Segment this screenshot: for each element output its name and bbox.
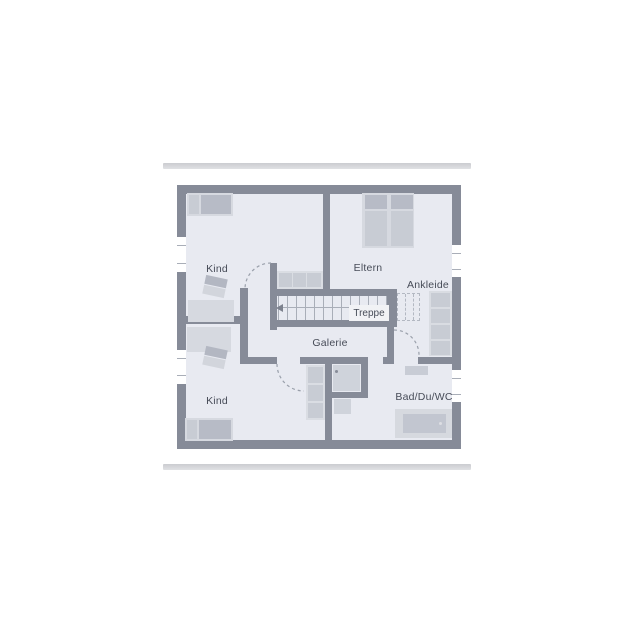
eltern-mattress-right [391,211,413,246]
bad-door-leaf [387,327,394,357]
window-left-upper [177,237,186,272]
wall-central-vertical [325,364,332,440]
eltern-pillow-right [391,195,413,209]
wall-stairs-bottom [277,320,397,327]
window-right-lower [452,370,461,402]
room-label-ankleide: Ankleide [407,279,449,291]
room-label-kind-bottom: Kind [206,395,228,407]
bottom-divider-bar [163,464,471,470]
room-label-treppe: Treppe [353,308,384,319]
wall-kind2-stub [248,357,277,364]
room-label-eltern: Eltern [354,262,383,274]
wall-kind-eltern [323,194,330,296]
stairs-upper-flight-dashed [397,293,420,321]
room-label-bad: Bad/Du/WC [395,391,452,403]
eltern-pillow-left [365,195,387,209]
bed-kind-bottom-mattress [199,420,231,439]
stairs-direction-arrow-icon [276,304,283,312]
treppe-label-box: Treppe [349,305,389,321]
room-label-kind-top: Kind [206,263,228,275]
wall-landing-west [270,263,277,330]
wall-central-horizontal [300,357,368,364]
wall-bad-north-left [383,357,394,364]
window-right-upper [452,245,461,277]
wall-bad-north-right [418,357,452,364]
window-left-lower [177,350,186,384]
shower [333,365,360,391]
wall-center-left [240,288,248,364]
shower-head-icon [335,370,338,373]
wall-stairs-top [277,289,397,296]
bed-kind-top-pillow [189,195,199,214]
dresser-kind-top [188,300,234,322]
wc [334,399,351,414]
top-divider-bar [163,163,471,169]
room-label-galerie: Galerie [312,337,347,349]
wall-shower-south [332,392,368,398]
bed-kind-bottom-pillow [187,420,197,439]
bed-kind-top-mattress [201,195,231,214]
page-canvas: Treppe Kind Eltern Ankleide Galerie Kind… [0,0,636,636]
bathtub-drain-icon [439,422,442,425]
washbasin [405,366,428,375]
eltern-mattress-left [365,211,387,246]
wall-shower-east [361,364,368,392]
